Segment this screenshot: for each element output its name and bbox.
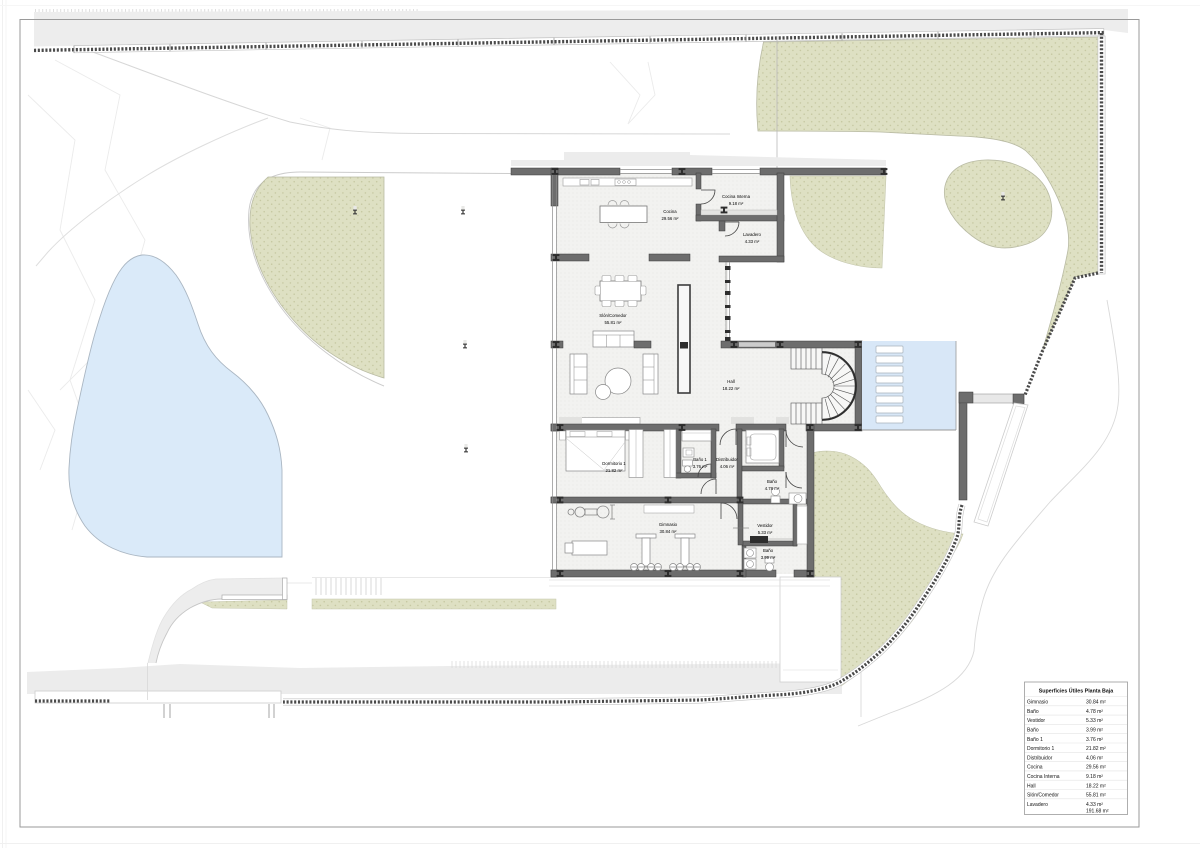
svg-text:4.33 m²: 4.33 m² [1086,802,1103,808]
svg-text:3.76 m²: 3.76 m² [1086,737,1103,743]
svg-text:4.33 m²: 4.33 m² [745,239,760,244]
svg-text:Baño: Baño [1027,728,1039,734]
svg-text:191.68 m²: 191.68 m² [1086,809,1109,815]
svg-text:Cocina Interna: Cocina Interna [1027,774,1060,780]
svg-text:4.78 m²: 4.78 m² [1086,709,1103,715]
svg-text:Distribuidor: Distribuidor [1027,755,1053,761]
svg-text:21.82 m²: 21.82 m² [606,468,624,473]
svg-text:29.56 m²: 29.56 m² [662,216,680,221]
svg-text:Superficies Útiles Planta Baja: Superficies Útiles Planta Baja [1039,688,1114,695]
svg-text:Vestidor: Vestidor [1027,718,1045,724]
svg-text:Dormitorio 1: Dormitorio 1 [1027,746,1054,752]
svg-text:21.82 m²: 21.82 m² [1086,746,1106,752]
svg-text:Lavadero: Lavadero [743,232,762,237]
svg-text:18.22 m²: 18.22 m² [723,386,741,391]
svg-text:Baño 1: Baño 1 [693,457,707,462]
svg-text:Cocina: Cocina [1027,765,1043,771]
svg-text:Vestidor: Vestidor [757,523,773,528]
svg-text:Cocina: Cocina [663,209,677,214]
svg-text:55.81 m²: 55.81 m² [605,320,623,325]
svg-text:5.33 m²: 5.33 m² [758,530,773,535]
svg-text:3.99 m²: 3.99 m² [1086,728,1103,734]
svg-text:Cocina Interna: Cocina Interna [722,194,751,199]
svg-text:Gimnasio: Gimnasio [1027,700,1048,706]
svg-text:Gimnasio: Gimnasio [659,522,678,527]
svg-text:Lavadero: Lavadero [1027,802,1048,808]
svg-text:4.78 m²: 4.78 m² [765,486,780,491]
svg-text:3.99 m²: 3.99 m² [761,555,776,560]
svg-text:18.22 m²: 18.22 m² [1086,783,1106,789]
svg-text:9.18 m²: 9.18 m² [729,201,744,206]
svg-text:9.18 m²: 9.18 m² [1086,774,1103,780]
svg-text:4.06 m²: 4.06 m² [1086,755,1103,761]
svg-text:Slón/Comedor: Slón/Comedor [1027,793,1059,799]
svg-text:Distribuidor: Distribuidor [716,457,738,462]
svg-text:5.33 m²: 5.33 m² [1086,718,1103,724]
svg-text:Slón/Comedor: Slón/Comedor [599,313,627,318]
svg-text:Baño 1: Baño 1 [1027,737,1043,743]
svg-text:Baño: Baño [767,479,778,484]
svg-text:Baño: Baño [763,548,774,553]
svg-text:Hall: Hall [727,379,734,384]
svg-text:30.84 m²: 30.84 m² [660,529,678,534]
svg-text:4.06 m²: 4.06 m² [720,464,735,469]
svg-text:Hall: Hall [1027,783,1036,789]
svg-text:55.81 m²: 55.81 m² [1086,793,1106,799]
svg-text:29.56 m²: 29.56 m² [1086,765,1106,771]
svg-text:30.84 m²: 30.84 m² [1086,700,1106,706]
svg-text:Dormitorio 1: Dormitorio 1 [602,461,626,466]
svg-text:Baño: Baño [1027,709,1039,715]
svg-text:3.76 m²: 3.76 m² [693,464,708,469]
